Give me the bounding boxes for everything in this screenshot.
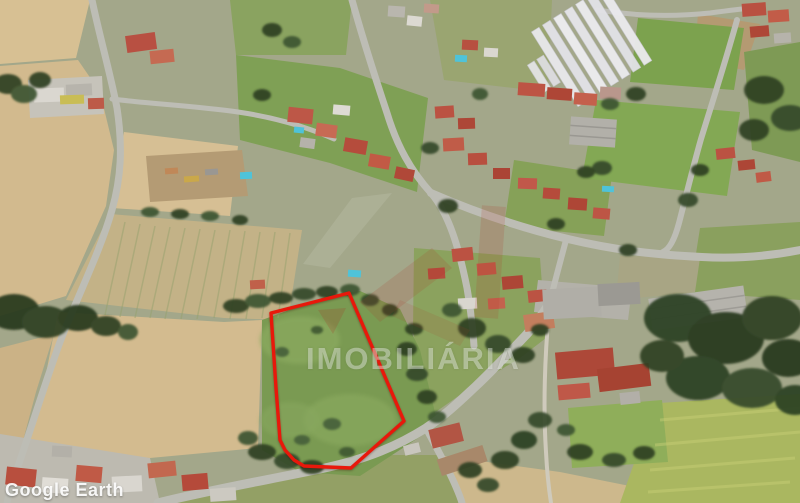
property-boundary-polygon — [271, 293, 404, 468]
aerial-screenshot: IMOBILIÁRIA Google Earth — [0, 0, 800, 503]
property-boundary-overlay — [0, 0, 800, 503]
